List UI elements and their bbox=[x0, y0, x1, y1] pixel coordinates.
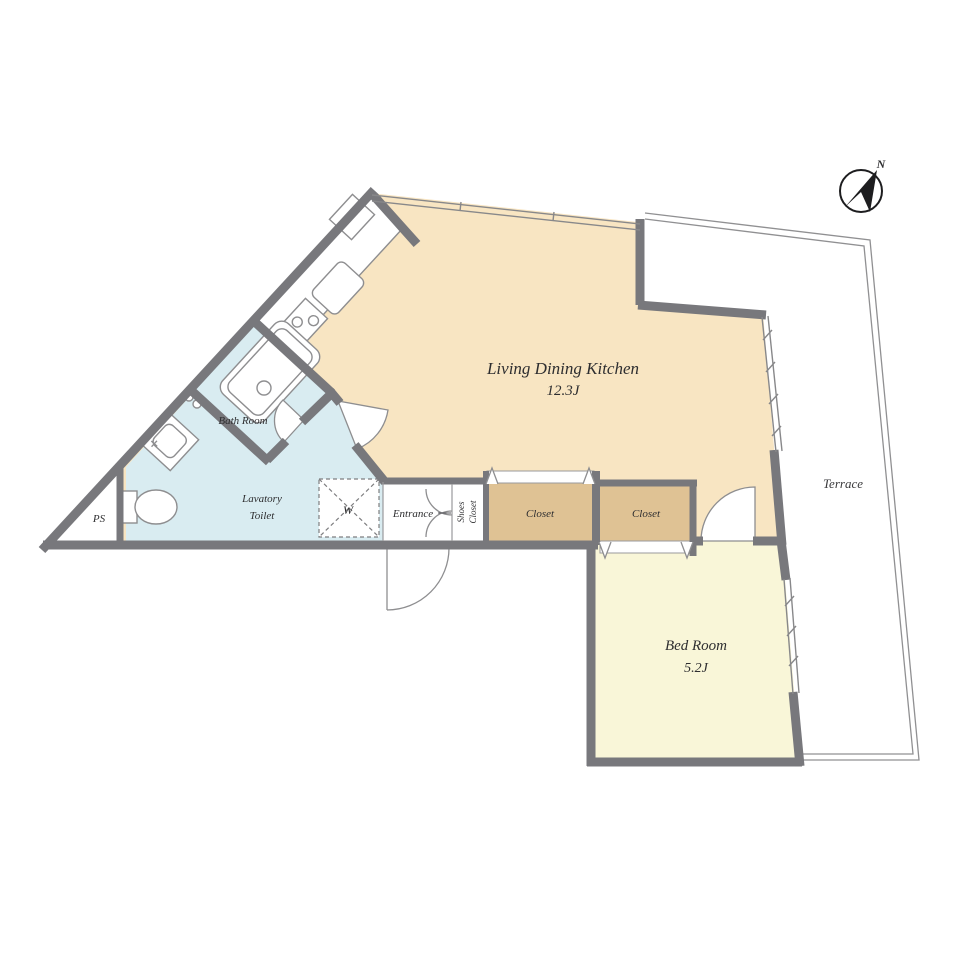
bathroom-label: Bath Room bbox=[218, 415, 267, 427]
front-door-swing bbox=[387, 548, 449, 610]
compass-needle bbox=[845, 170, 877, 212]
svg-text:Closet: Closet bbox=[468, 500, 478, 524]
ldk-label: Living Dining Kitchen bbox=[486, 359, 639, 378]
ldk-size: 12.3J bbox=[547, 383, 581, 399]
lavatory-label-line1: Lavatory bbox=[241, 493, 282, 505]
closet-2-door-strip bbox=[600, 541, 691, 553]
washer-label: W bbox=[343, 503, 354, 517]
compass-n-label: N bbox=[876, 157, 887, 171]
bedroom-size: 5.2J bbox=[684, 661, 709, 676]
toilet bbox=[122, 490, 177, 524]
floor-plan-svg: N Living Dining Kitchen 12.3J Bed Room 5… bbox=[0, 0, 960, 960]
compass: N bbox=[840, 157, 887, 212]
ps-label: PS bbox=[92, 513, 106, 525]
svg-text:Shoes: Shoes bbox=[456, 501, 466, 522]
bath-drain bbox=[257, 381, 271, 395]
closet-2-label: Closet bbox=[632, 508, 661, 520]
terrace-label: Terrace bbox=[823, 476, 863, 491]
bedroom-label: Bed Room bbox=[665, 638, 727, 654]
lavatory-label-line2: Toilet bbox=[250, 510, 276, 522]
closet-1-door-strip bbox=[487, 471, 594, 483]
closet-1-label: Closet bbox=[526, 508, 555, 520]
floor-plan: N Living Dining Kitchen 12.3J Bed Room 5… bbox=[0, 0, 960, 960]
entrance-label: Entrance bbox=[392, 508, 433, 520]
wall-bedroom-right-top bbox=[781, 540, 786, 580]
